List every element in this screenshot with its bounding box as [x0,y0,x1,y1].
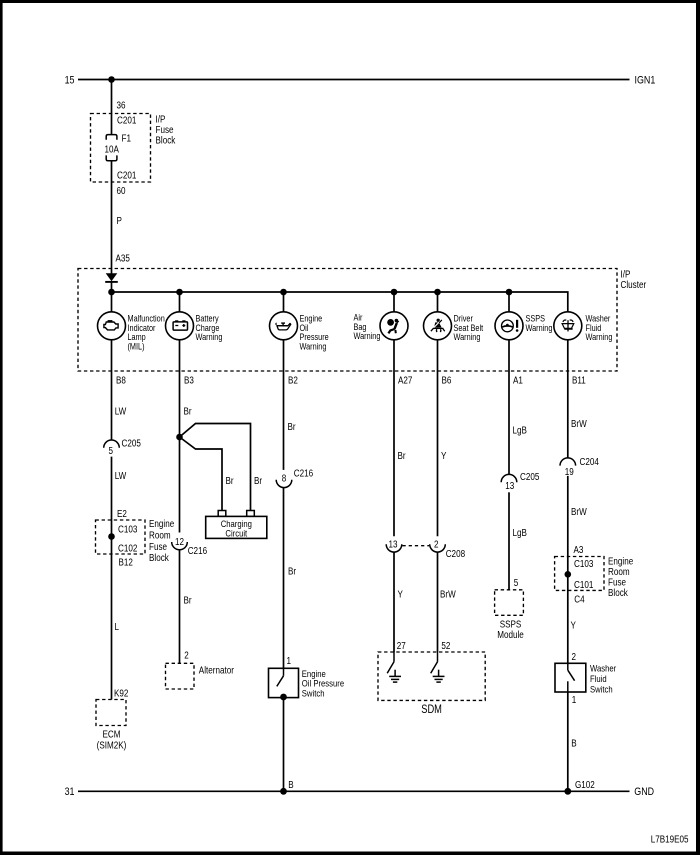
svg-text:B11: B11 [572,376,586,387]
svg-text:C201: C201 [117,171,137,182]
svg-text:C103: C103 [574,559,594,570]
svg-text:ECM: ECM [103,730,121,741]
svg-text:Module: Module [497,630,524,641]
svg-text:Warning: Warning [586,332,613,342]
svg-text:Y: Y [398,589,404,600]
svg-text:13: 13 [389,539,398,550]
svg-text:B8: B8 [116,376,126,387]
svg-text:C204: C204 [580,457,600,468]
svg-text:13: 13 [505,481,514,492]
svg-text:Warning: Warning [354,331,381,341]
svg-text:Block: Block [608,588,629,599]
svg-text:Block: Block [156,136,177,147]
svg-text:B6: B6 [442,376,452,387]
svg-text:Warning: Warning [196,332,223,342]
svg-text:B12: B12 [119,558,134,569]
svg-text:Warning: Warning [454,332,481,342]
svg-text:Cluster: Cluster [621,280,647,291]
svg-text:Fuse: Fuse [149,542,167,553]
svg-text:Fluid: Fluid [590,674,607,685]
svg-text:G102: G102 [575,780,595,791]
svg-text:Switch: Switch [302,689,325,700]
svg-text:F1: F1 [122,133,132,144]
svg-text:31: 31 [65,786,75,798]
svg-text:8: 8 [282,474,287,485]
svg-text:Br: Br [254,476,263,487]
svg-text:Y: Y [571,621,577,632]
svg-text:Engine: Engine [149,519,175,530]
svg-text:Engine: Engine [608,556,634,567]
svg-text:BrW: BrW [571,507,587,518]
svg-text:1: 1 [572,695,577,706]
svg-text:I/P: I/P [156,115,166,126]
svg-text:2: 2 [184,651,189,662]
svg-text:36: 36 [117,101,126,112]
svg-text:C216: C216 [188,546,208,557]
svg-text:C201: C201 [117,116,137,127]
svg-text:2: 2 [434,539,439,550]
svg-text:Fuse: Fuse [608,578,626,589]
svg-text:C208: C208 [446,549,466,560]
svg-text:27: 27 [397,641,406,652]
svg-text:15: 15 [65,74,75,86]
svg-text:K92: K92 [114,689,129,700]
svg-text:52: 52 [441,641,450,652]
svg-text:Warning: Warning [300,341,327,351]
svg-text:Room: Room [149,530,171,541]
svg-text:Fuse: Fuse [156,125,174,136]
svg-text:Warning: Warning [526,323,553,333]
svg-text:SDM: SDM [421,704,442,716]
svg-text:B: B [288,780,294,791]
svg-text:10A: 10A [105,145,120,156]
svg-text:SSPS: SSPS [500,619,522,630]
svg-text:(MIL): (MIL) [128,341,145,351]
svg-text:5: 5 [514,578,519,589]
svg-text:Br: Br [288,422,297,433]
svg-text:P: P [117,216,123,227]
svg-text:A27: A27 [398,376,413,387]
svg-text:Room: Room [608,567,630,578]
svg-text:5: 5 [108,446,113,457]
svg-text:Washer: Washer [590,664,616,675]
svg-text:L7B19E05: L7B19E05 [651,835,689,846]
svg-text:Switch: Switch [590,685,613,696]
svg-text:E2: E2 [117,509,127,520]
svg-text:Br: Br [184,407,193,418]
svg-text:Block: Block [149,553,170,564]
svg-text:Circuit: Circuit [225,528,247,539]
svg-text:Br: Br [398,451,407,462]
svg-text:C102: C102 [118,544,138,555]
svg-text:60: 60 [117,186,126,197]
svg-text:LgB: LgB [513,528,528,539]
svg-text:C4: C4 [574,595,585,606]
svg-text:LW: LW [115,407,127,418]
svg-text:A1: A1 [513,376,523,387]
svg-text:C205: C205 [122,438,142,449]
svg-text:19: 19 [565,467,574,478]
svg-text:Y: Y [441,451,447,462]
svg-text:(SIM2K): (SIM2K) [97,741,127,752]
svg-text:B2: B2 [288,376,298,387]
svg-text:LW: LW [115,471,127,482]
svg-text:C205: C205 [520,472,540,483]
svg-text:BrW: BrW [440,589,456,600]
svg-text:12: 12 [175,537,184,548]
svg-text:LgB: LgB [513,426,528,437]
svg-text:IGN1: IGN1 [635,74,656,86]
svg-text:Br: Br [226,476,235,487]
svg-text:L: L [115,622,120,633]
svg-text:C216: C216 [294,468,314,479]
svg-text:C101: C101 [574,580,594,591]
svg-text:2: 2 [572,652,577,663]
svg-text:GND: GND [634,786,654,798]
svg-text:Alternator: Alternator [199,666,235,677]
svg-text:A3: A3 [574,545,584,556]
svg-text:I/P: I/P [621,270,631,281]
svg-text:B: B [571,738,577,749]
svg-text:Br: Br [184,596,193,607]
svg-text:Br: Br [288,567,297,578]
svg-text:C103: C103 [118,525,138,536]
svg-text:A35: A35 [116,254,131,265]
svg-text:BrW: BrW [571,419,587,430]
svg-text:1: 1 [287,656,292,667]
svg-text:B3: B3 [184,376,194,387]
